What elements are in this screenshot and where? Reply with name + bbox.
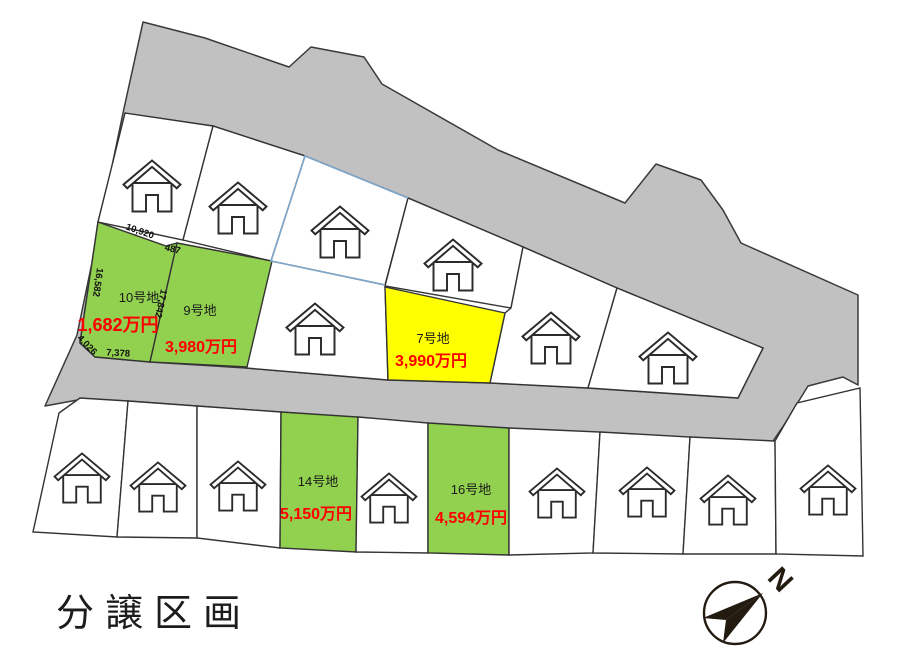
plot-bottom-3 bbox=[197, 406, 281, 548]
compass: N bbox=[703, 561, 799, 644]
plot-bottom-9 bbox=[683, 437, 776, 554]
plot-14-price: 5,150万円 bbox=[280, 505, 352, 523]
plot-10-label: 10号地 bbox=[119, 290, 159, 305]
plot-bottom-5 bbox=[356, 417, 428, 553]
plot-bottom-1 bbox=[33, 398, 128, 537]
plot-16-label: 16号地 bbox=[451, 482, 491, 497]
plot-9-price: 3,980万円 bbox=[165, 338, 237, 356]
subdivision-map-page: 10,920 487 16,582 17,842 4,026 7,378 10号… bbox=[0, 0, 908, 646]
compass-north-label: N bbox=[761, 561, 799, 598]
plot-7-label: 7号地 bbox=[416, 331, 449, 346]
dimension-bottom: 7,378 bbox=[106, 347, 130, 359]
site-map: 10,920 487 16,582 17,842 4,026 7,378 10号… bbox=[0, 0, 908, 646]
plot-10-price: 1,682万円 bbox=[77, 315, 158, 335]
plot-14-label: 14号地 bbox=[298, 474, 338, 489]
plot-9-label: 9号地 bbox=[183, 303, 216, 318]
plot-16-price: 4,594万円 bbox=[435, 509, 507, 527]
plot-7-price: 3,990万円 bbox=[395, 352, 467, 370]
page-title: 分譲区画 bbox=[56, 593, 252, 635]
